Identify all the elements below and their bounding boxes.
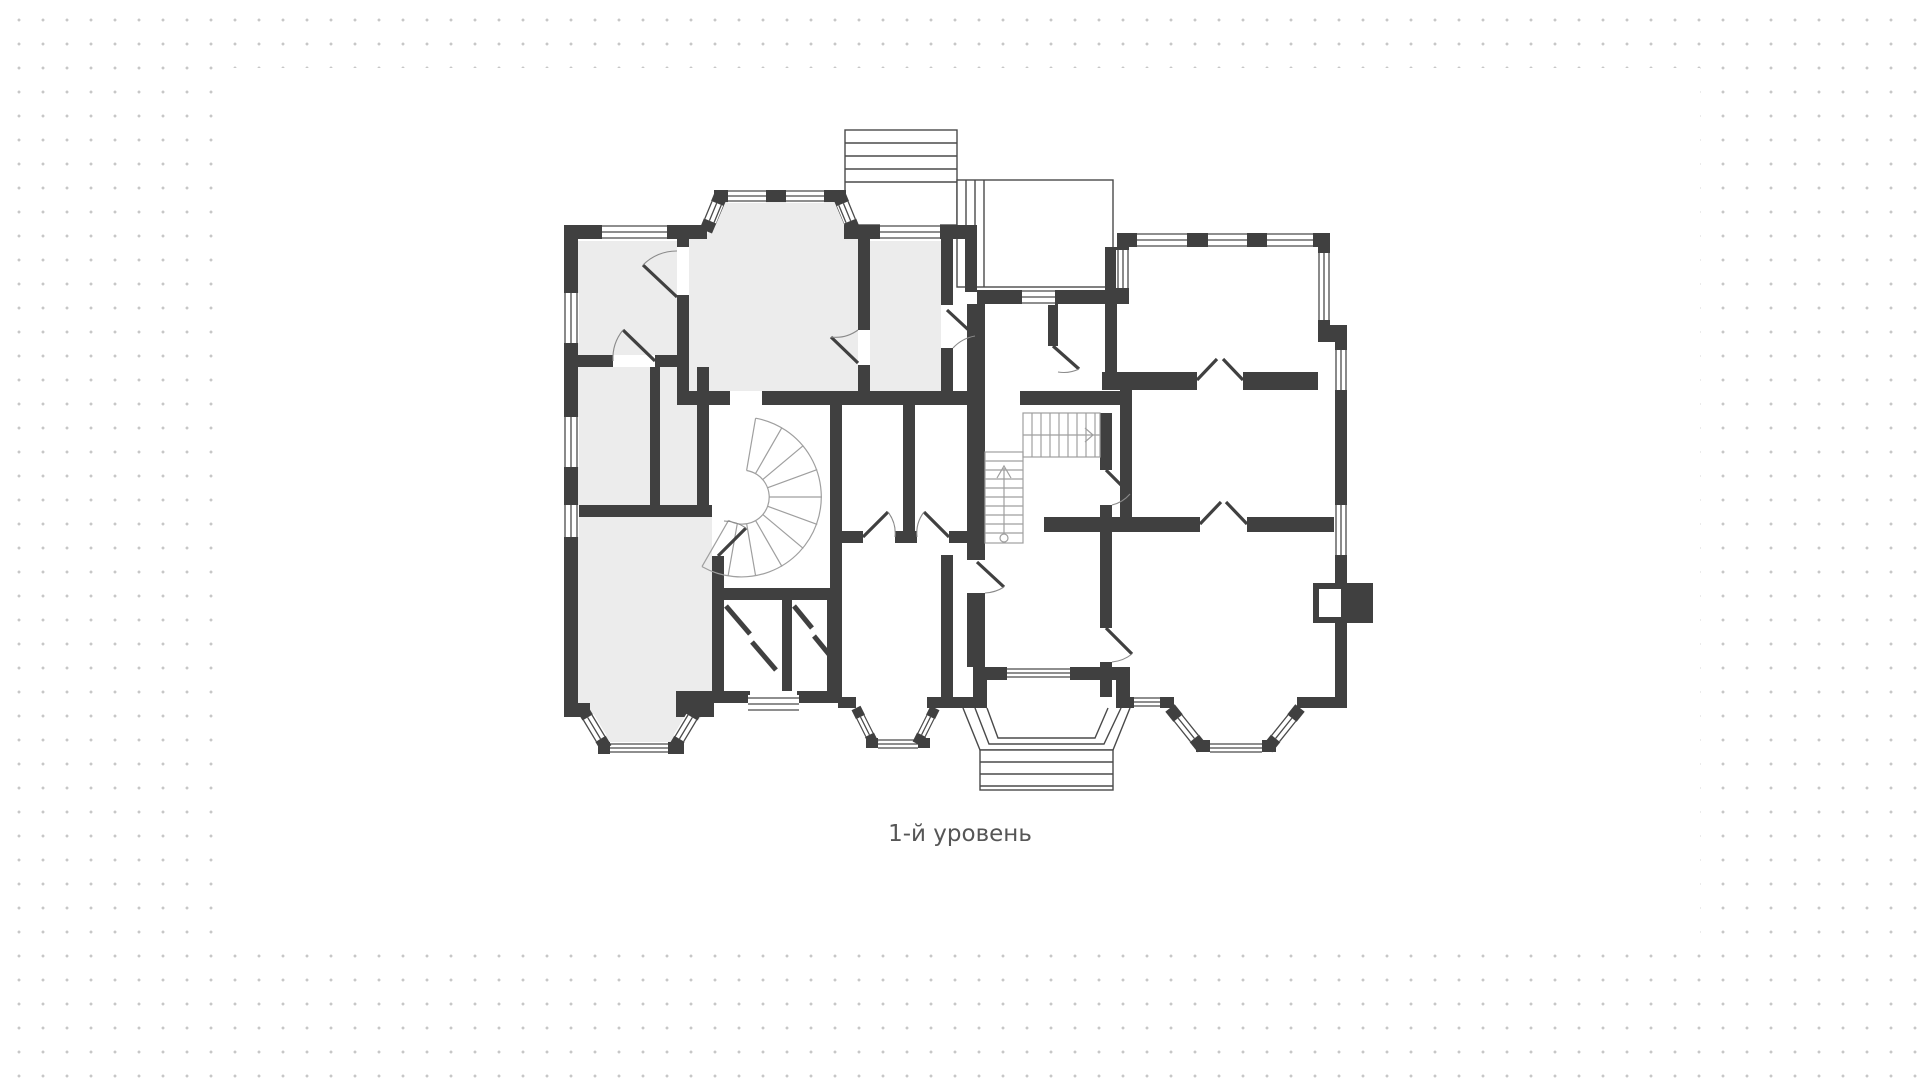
window-right-2 — [1334, 350, 1348, 390]
window-left-1 — [563, 293, 579, 343]
window-bay2-bottom — [878, 740, 918, 748]
plan-caption: 1-й уровень — [888, 821, 1032, 847]
window-porch-door — [1007, 669, 1070, 677]
room-fills — [578, 198, 941, 746]
window-top-right-3 — [1267, 232, 1313, 248]
closet-door-symbols — [726, 606, 832, 670]
window-left-2 — [563, 417, 579, 467]
window-bottom-flat — [748, 695, 799, 713]
window-top-left — [602, 224, 667, 240]
exterior-staircase-top — [845, 130, 957, 225]
stairs — [702, 413, 1100, 577]
window-top-mid — [880, 224, 940, 240]
window-right-1 — [1317, 253, 1331, 320]
window-bay3-bottom — [1210, 744, 1262, 752]
terrace-top — [957, 180, 1113, 287]
fireplace — [1313, 583, 1373, 623]
floor-plan: 1-й уровень — [0, 0, 1920, 1078]
window-top-right-2 — [1208, 232, 1247, 248]
bay3-left-slope — [1165, 704, 1208, 753]
bay2-left-slope — [851, 705, 880, 746]
window-top-right-1 — [1137, 232, 1187, 248]
window-terrace-side — [1116, 250, 1130, 288]
entrance-porch — [963, 708, 1130, 790]
window-right-3 — [1334, 505, 1348, 555]
window-bottom-porch-side — [1134, 697, 1160, 708]
porch-steps — [980, 750, 1113, 790]
window-under-terrace — [1022, 289, 1055, 305]
bay3-right-slope — [1262, 704, 1305, 753]
window-left-3 — [563, 505, 579, 537]
